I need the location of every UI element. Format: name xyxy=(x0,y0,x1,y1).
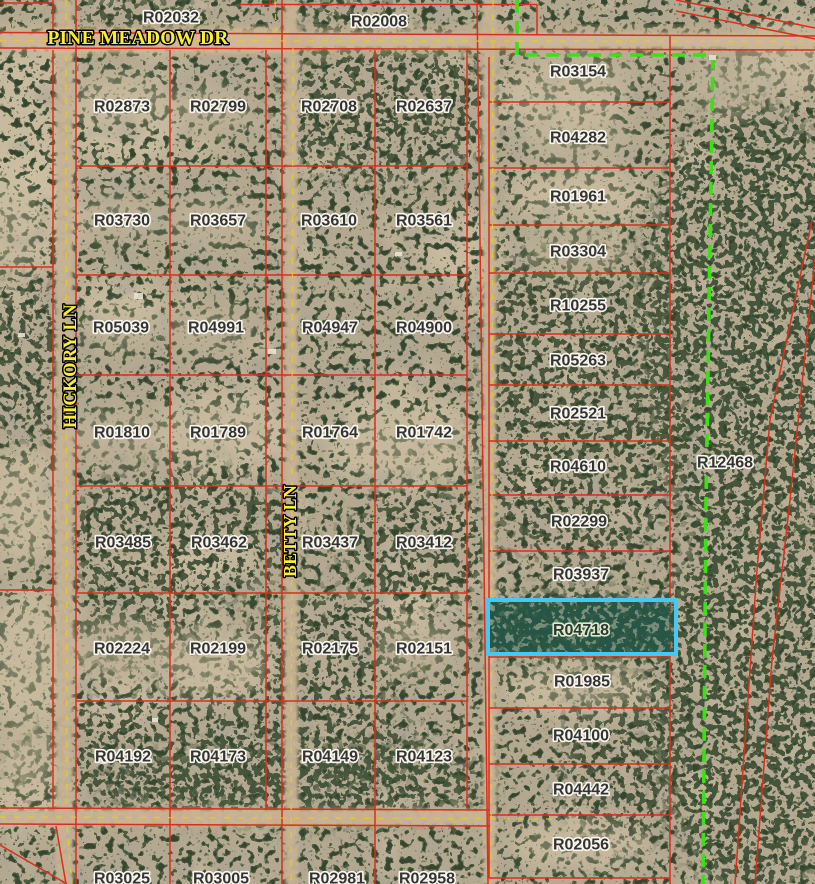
svg-text:R01764: R01764 xyxy=(302,425,358,442)
svg-text:R04718: R04718 xyxy=(553,622,609,639)
svg-text:R02958: R02958 xyxy=(399,871,455,884)
svg-text:R02199: R02199 xyxy=(190,641,246,658)
svg-text:R02224: R02224 xyxy=(94,641,150,658)
svg-text:R04442: R04442 xyxy=(553,782,609,799)
svg-text:BETTY LN: BETTY LN xyxy=(280,485,300,577)
svg-text:R03937: R03937 xyxy=(553,567,609,584)
svg-text:HICKORY LN: HICKORY LN xyxy=(61,304,81,429)
svg-text:R01742: R01742 xyxy=(396,425,452,442)
svg-text:R04173: R04173 xyxy=(190,749,246,766)
svg-text:R03730: R03730 xyxy=(94,213,150,230)
svg-text:R04149: R04149 xyxy=(302,749,358,766)
svg-text:R02637: R02637 xyxy=(396,99,452,116)
svg-text:R03437: R03437 xyxy=(302,535,358,552)
svg-text:R02708: R02708 xyxy=(301,99,357,116)
svg-text:R02299: R02299 xyxy=(551,514,607,531)
svg-text:R03005: R03005 xyxy=(193,871,249,884)
svg-text:R04610: R04610 xyxy=(550,459,606,476)
svg-text:R03154: R03154 xyxy=(550,64,606,81)
svg-text:R12468: R12468 xyxy=(697,455,753,472)
svg-text:R02521: R02521 xyxy=(550,406,606,423)
svg-text:R03485: R03485 xyxy=(95,535,151,552)
svg-text:R02175: R02175 xyxy=(302,641,358,658)
svg-text:R03025: R03025 xyxy=(94,871,150,884)
svg-text:R04100: R04100 xyxy=(553,728,609,745)
svg-text:R03412: R03412 xyxy=(396,535,452,552)
svg-text:R01789: R01789 xyxy=(190,425,246,442)
svg-text:R03304: R03304 xyxy=(550,244,606,261)
svg-text:R03561: R03561 xyxy=(396,213,452,230)
svg-text:R02873: R02873 xyxy=(94,99,150,116)
svg-text:R04282: R04282 xyxy=(550,130,606,147)
svg-text:R02032: R02032 xyxy=(143,10,199,27)
svg-text:R01961: R01961 xyxy=(550,189,606,206)
svg-text:R02981: R02981 xyxy=(309,871,365,884)
svg-text:R03657: R03657 xyxy=(190,213,246,230)
svg-text:R03610: R03610 xyxy=(301,213,357,230)
svg-text:R02151: R02151 xyxy=(396,641,452,658)
svg-text:R04900: R04900 xyxy=(396,320,452,337)
svg-text:R02056: R02056 xyxy=(553,837,609,854)
svg-text:R02008: R02008 xyxy=(351,14,407,31)
svg-text:R04947: R04947 xyxy=(302,320,358,337)
svg-text:R04991: R04991 xyxy=(188,320,244,337)
svg-text:R04123: R04123 xyxy=(396,749,452,766)
svg-text:R10255: R10255 xyxy=(550,298,606,315)
svg-text:R05263: R05263 xyxy=(550,353,606,370)
svg-text:R04192: R04192 xyxy=(95,749,151,766)
svg-text:R03462: R03462 xyxy=(191,535,247,552)
svg-text:R05039: R05039 xyxy=(93,320,149,337)
svg-text:R02799: R02799 xyxy=(190,99,246,116)
svg-text:R01810: R01810 xyxy=(94,425,150,442)
svg-text:R01985: R01985 xyxy=(554,674,610,691)
svg-text:PINE MEADOW DR: PINE MEADOW DR xyxy=(47,28,229,49)
